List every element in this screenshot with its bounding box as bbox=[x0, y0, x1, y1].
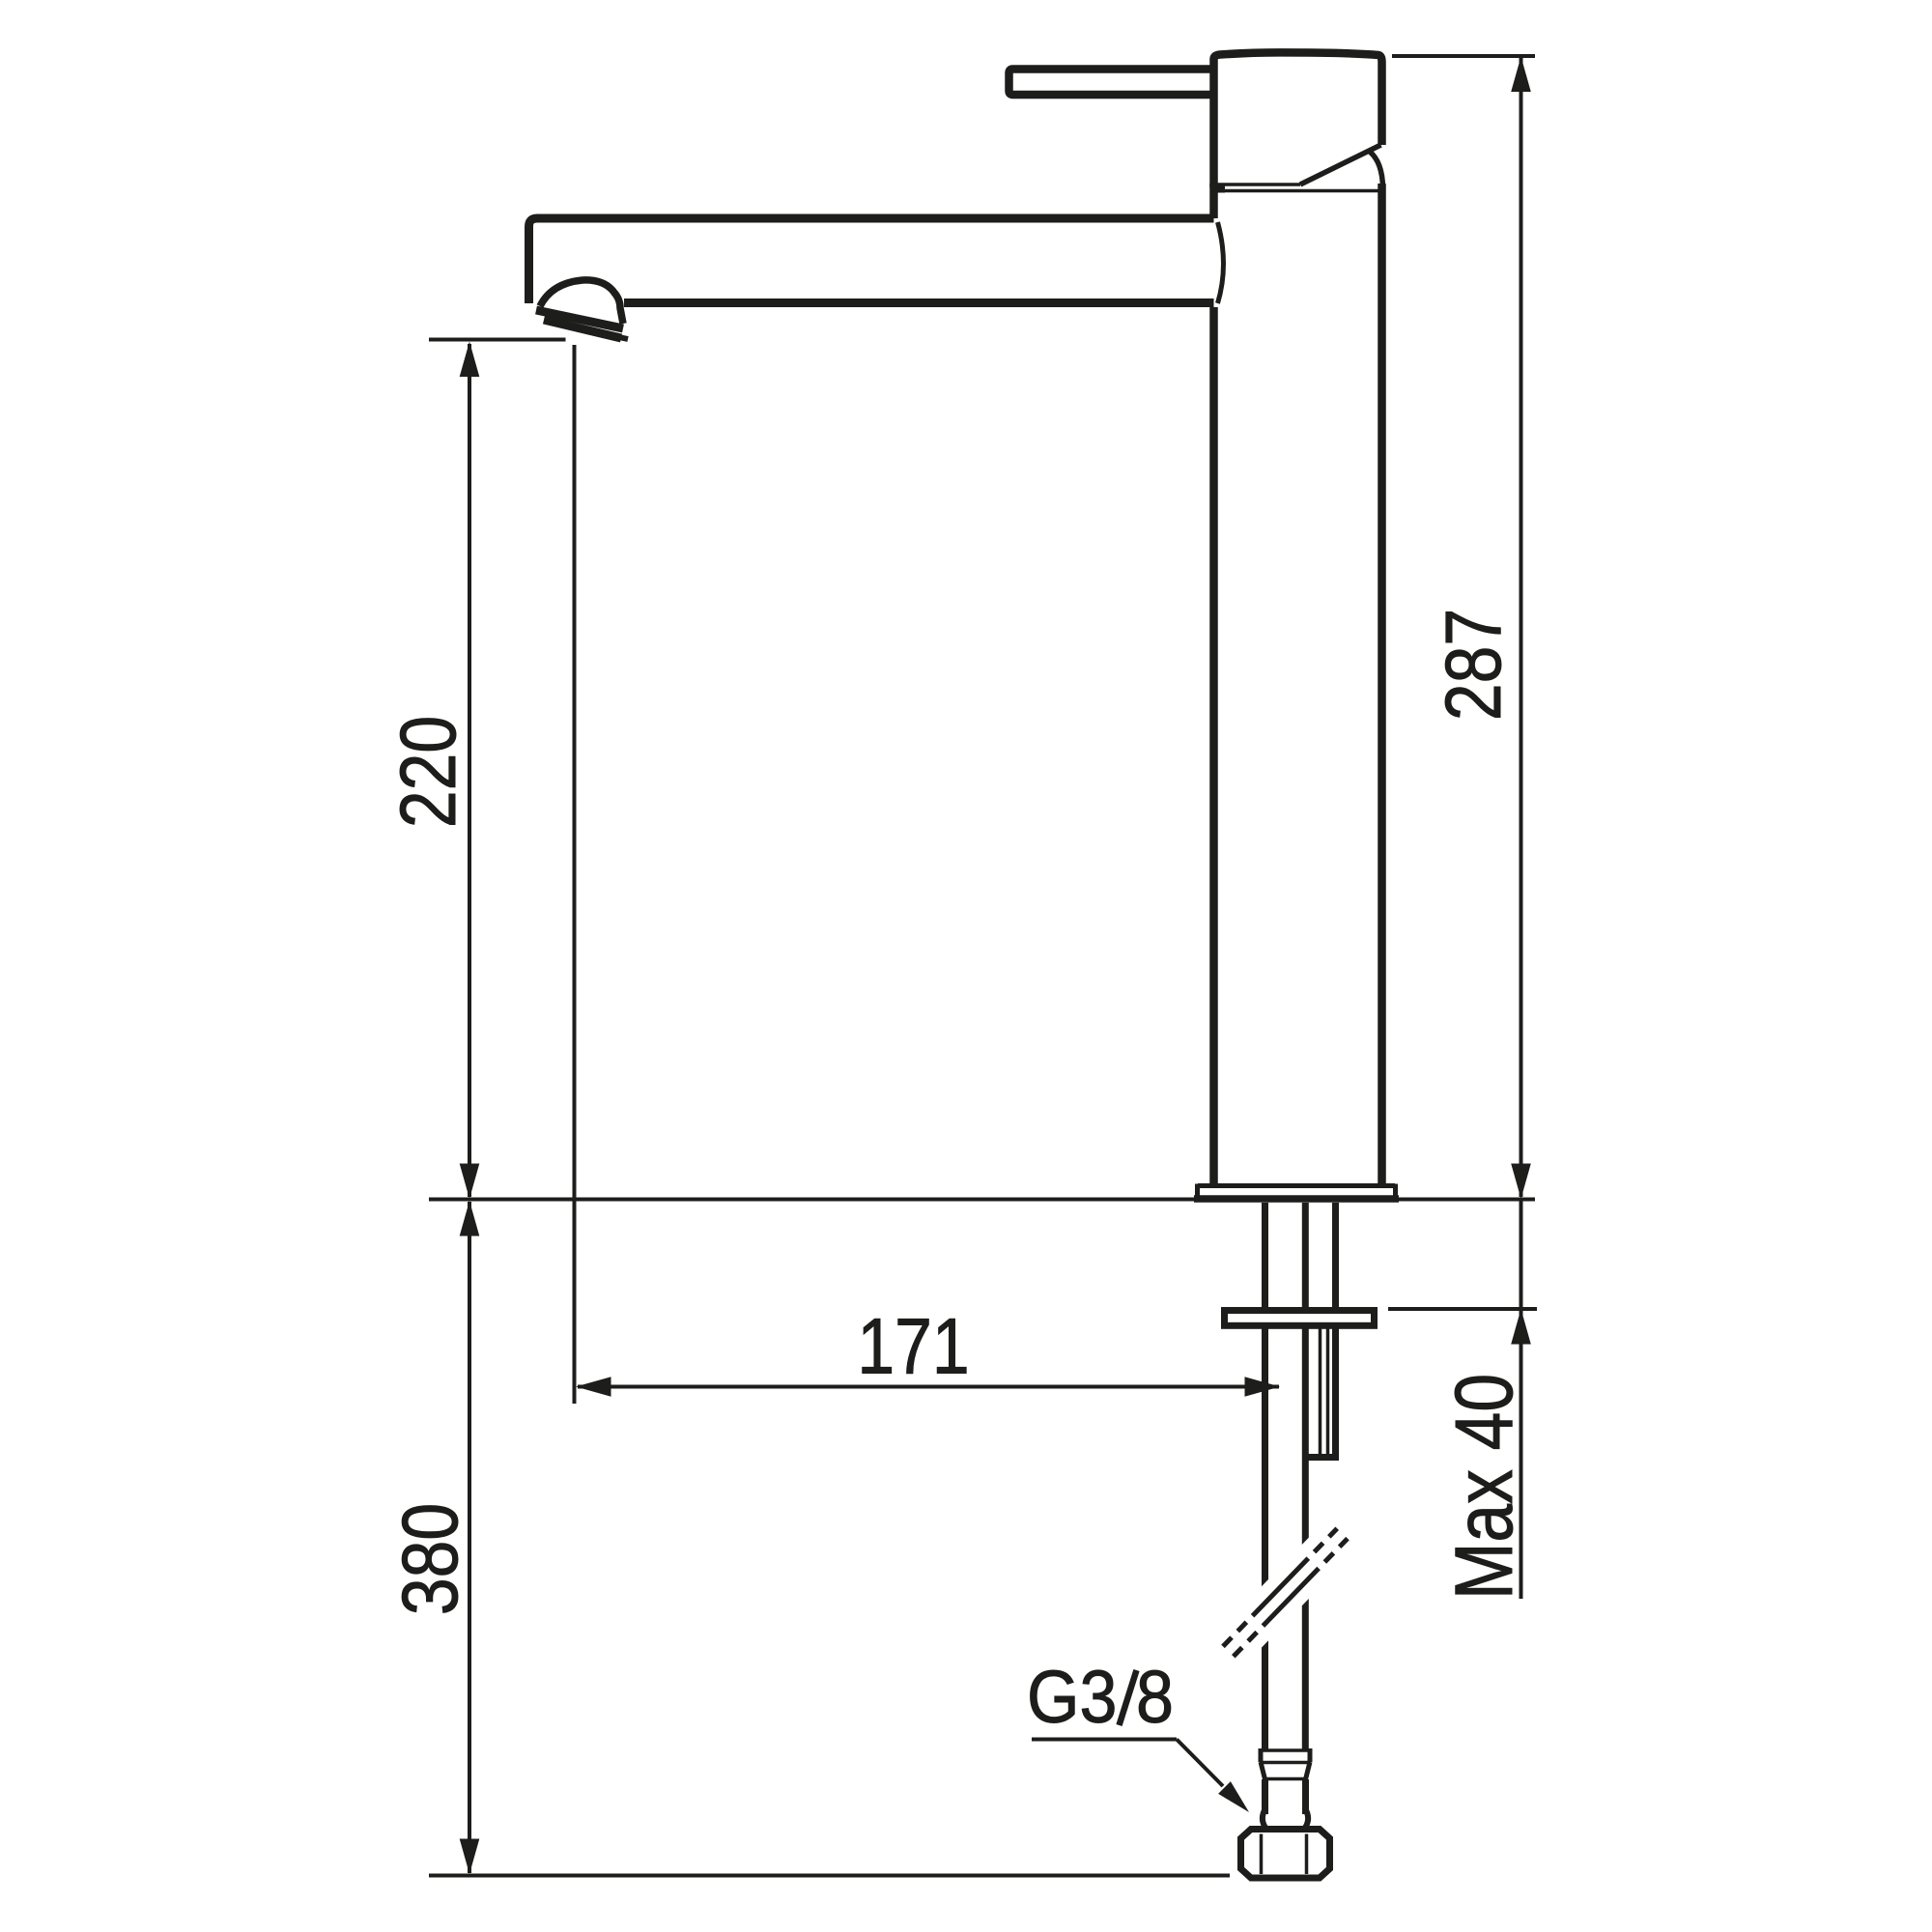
svg-text:171: 171 bbox=[857, 1302, 969, 1391]
svg-text:220: 220 bbox=[384, 716, 473, 828]
svg-text:287: 287 bbox=[1430, 609, 1519, 721]
svg-text:Max 40: Max 40 bbox=[1437, 1374, 1529, 1600]
svg-text:380: 380 bbox=[386, 1503, 475, 1615]
svg-text:G3 8: G3 8 bbox=[1027, 1655, 1174, 1739]
